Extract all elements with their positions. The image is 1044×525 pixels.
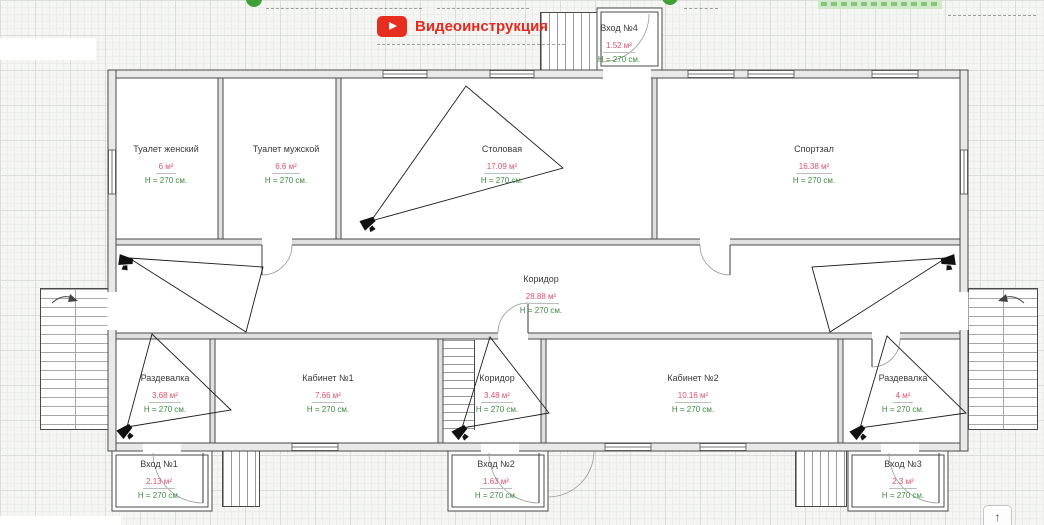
room-label-koridor-small[interactable]: Коридор 3.48 м² H = 270 см. [442,373,552,415]
panel-fragment [0,516,121,525]
entrance-annex [112,8,948,511]
truncated-link-underline[interactable] [684,8,718,9]
panel-fragment [0,38,96,60]
room-label-vhod-2[interactable]: Вход №2 1.63 м² H = 270 см. [441,459,551,501]
room-label-kabinet-1[interactable]: Кабинет №1 7.66 м² H = 270 см. [273,373,383,415]
room-label-vhod-4[interactable]: Вход №4 1.52 м² H = 270 см. [564,23,674,65]
camera-view-cone [812,258,946,332]
truncated-link-underline[interactable] [948,15,1036,16]
highlighted-text-fragment [818,0,942,9]
room-label-vhod-3[interactable]: Вход №3 2.3 м² H = 270 см. [848,459,958,501]
truncated-link-underline[interactable] [266,8,422,9]
video-instruction-label: Видеоинструкция [415,18,548,35]
cctv-camera-icon[interactable] [116,422,136,442]
floorplan-canvas: Туалет женский 6 м² H = 270 см. Туалет м… [0,0,1044,525]
room-label-tualet-muzhskoy[interactable]: Туалет мужской 6.6 м² H = 270 см. [231,144,341,186]
room-label-sportzal[interactable]: Спортзал 16.38 м² H = 270 см. [759,144,869,186]
cctv-camera-icon[interactable] [359,214,379,234]
cctv-camera-icon[interactable] [451,423,471,443]
cctv-camera-icon[interactable] [940,254,956,271]
room-label-razdevalka-right[interactable]: Раздевалка 4 м² H = 270 см. [848,373,958,415]
floorplan-drawing [0,0,1044,525]
room-label-stolovaya[interactable]: Столовая 17.09 м² H = 270 см. [447,144,557,186]
room-label-razdevalka-left[interactable]: Раздевалка 3.68 м² H = 270 см. [110,373,220,415]
room-label-vhod-1[interactable]: Вход №1 2.13 м² H = 270 см. [104,459,214,501]
room-label-koridor-main[interactable]: Коридор 28.88 м² H = 270 см. [486,274,596,316]
cctv-camera-icon[interactable] [849,423,869,443]
video-instruction-link[interactable]: Видеоинструкция [377,16,548,37]
youtube-play-icon [377,16,407,37]
room-label-kabinet-2[interactable]: Кабинет №2 10.16 м² H = 270 см. [638,373,748,415]
video-link-underline [377,44,565,45]
room-label-tualet-zhenskiy[interactable]: Туалет женский 6 м² H = 270 см. [111,144,221,186]
camera-view-cone [129,258,263,332]
up-arrow-icon: ↑ [995,510,1001,524]
cctv-camera-icon[interactable] [118,254,134,271]
scroll-to-top-button[interactable]: ↑ [983,505,1012,525]
truncated-link-underline[interactable] [437,8,529,9]
